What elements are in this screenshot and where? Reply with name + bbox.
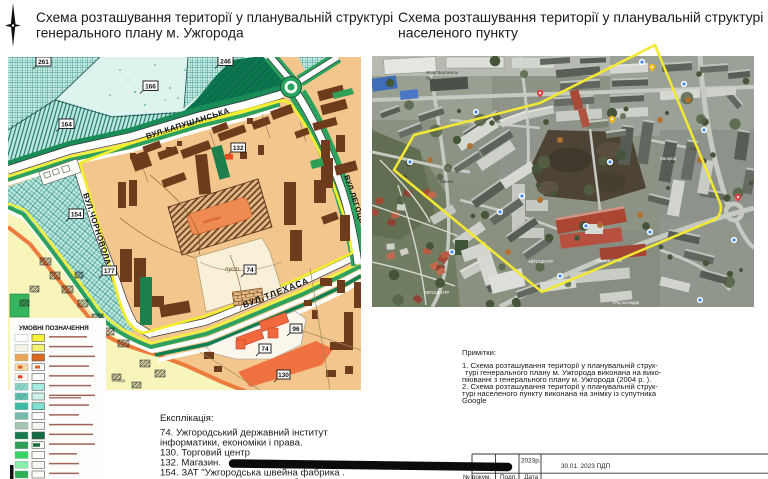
svg-text:Схема розташування території у: Схема розташування території у плануваль…	[36, 10, 393, 25]
svg-text:генерального плану м. Ужгорода: генерального плану м. Ужгорода	[36, 26, 244, 41]
svg-text:74: 74	[261, 346, 269, 353]
svg-text:Дата: Дата	[524, 474, 539, 479]
svg-text:74: 74	[246, 267, 254, 274]
svg-text:Схема розташування території у: Схема розташування території у плануваль…	[398, 9, 763, 25]
svg-text:Примітки:: Примітки:	[462, 348, 496, 357]
svg-text:2023р.: 2023р.	[521, 458, 541, 465]
svg-text:246: 246	[220, 59, 231, 66]
svg-text:Ужгород: Ужгород	[660, 156, 677, 161]
svg-text:пуст.: пуст.	[225, 267, 241, 273]
svg-text:АВТОЦЕНТР: АВТОЦЕНТР	[528, 259, 553, 264]
svg-text:130: 130	[278, 372, 289, 379]
svg-text:96: 96	[292, 326, 300, 333]
svg-text:УМОВНІ ПОЗНАЧЕННЯ: УМОВНІ ПОЗНАЧЕННЯ	[19, 325, 89, 332]
svg-text:населеного пункту: населеного пункту	[398, 25, 518, 41]
svg-text:30.01. 2023 ПДП: 30.01. 2023 ПДП	[561, 463, 610, 470]
svg-text:Пед: Пед	[426, 76, 434, 81]
svg-text:Жков Вертикаль: Жков Вертикаль	[426, 70, 459, 75]
svg-text:Google: Google	[462, 396, 487, 405]
svg-text:ТРЦ господар: ТРЦ господар	[612, 300, 640, 305]
svg-text:турі населеного пункту виконан: турі населеного пункту виконана на знімк…	[462, 389, 657, 398]
svg-text:177: 177	[104, 268, 115, 275]
svg-text:154: 154	[71, 212, 82, 219]
svg-text:164: 164	[61, 122, 72, 129]
svg-text:261: 261	[38, 59, 49, 66]
svg-text:132: 132	[233, 145, 244, 152]
svg-text:підгор.: підгор.	[112, 378, 126, 383]
svg-text:Вишня: Вишня	[440, 179, 453, 184]
svg-text:Експлікація:: Експлікація:	[160, 413, 214, 424]
svg-text:Подп.: Подп.	[500, 474, 517, 479]
svg-text:АВТОЦЕНТР: АВТОЦЕНТР	[424, 290, 449, 295]
svg-text:166: 166	[145, 84, 156, 91]
svg-text:№ докум.: № докум.	[463, 474, 491, 479]
